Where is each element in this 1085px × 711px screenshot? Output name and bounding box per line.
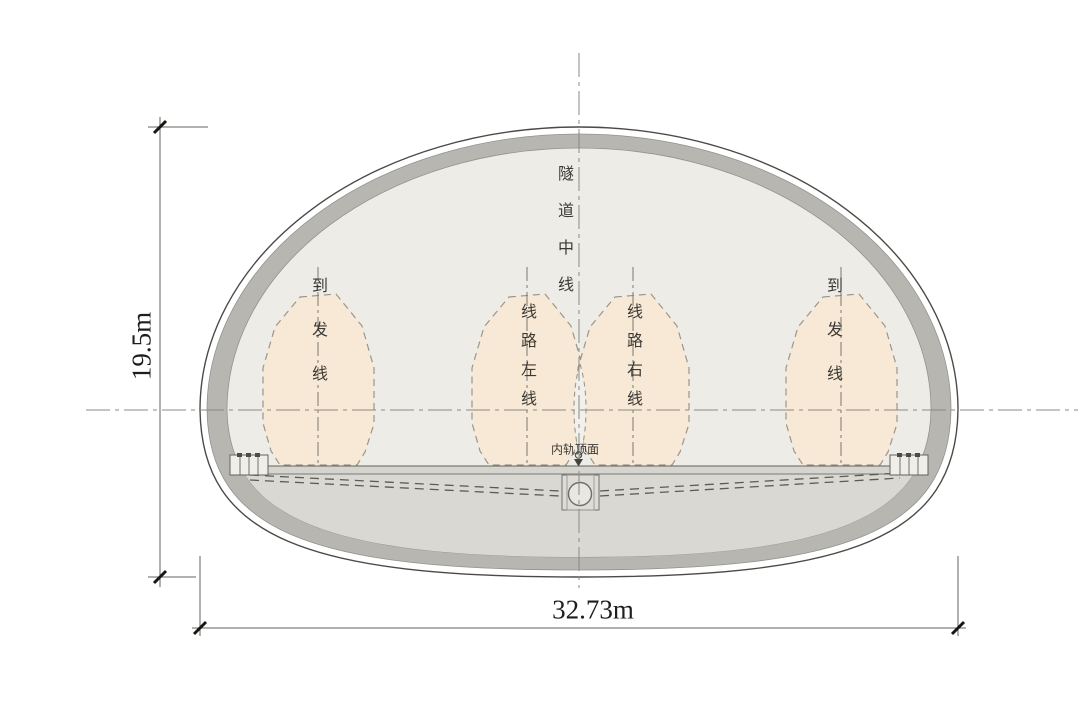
tunnel-cross-section-diagram: 隧道中线 到发线 线路左线 线路右线 到发线 内轨顶面 19.5m 32.73m <box>0 0 1085 711</box>
track-label-main-right: 线路右线 <box>625 303 641 419</box>
cable-trough-right <box>890 453 928 475</box>
tunnel-drawing-canvas <box>0 0 1085 711</box>
track-label-main-left: 线路左线 <box>519 303 535 419</box>
central-drain <box>562 475 599 510</box>
rail-top-surface-label: 内轨顶面 <box>551 441 599 458</box>
track-label-arrival-left: 到发线 <box>310 277 326 409</box>
tunnel-centerline-label: 隧道中线 <box>556 165 572 313</box>
dimension-width-value: 32.73m <box>552 595 634 626</box>
track-slab <box>180 466 980 474</box>
cable-trough-left <box>230 453 268 475</box>
drain-pipe-circle <box>569 483 592 506</box>
dimension-height-value: 19.5m <box>127 312 158 380</box>
track-label-arrival-right: 到发线 <box>825 277 841 409</box>
